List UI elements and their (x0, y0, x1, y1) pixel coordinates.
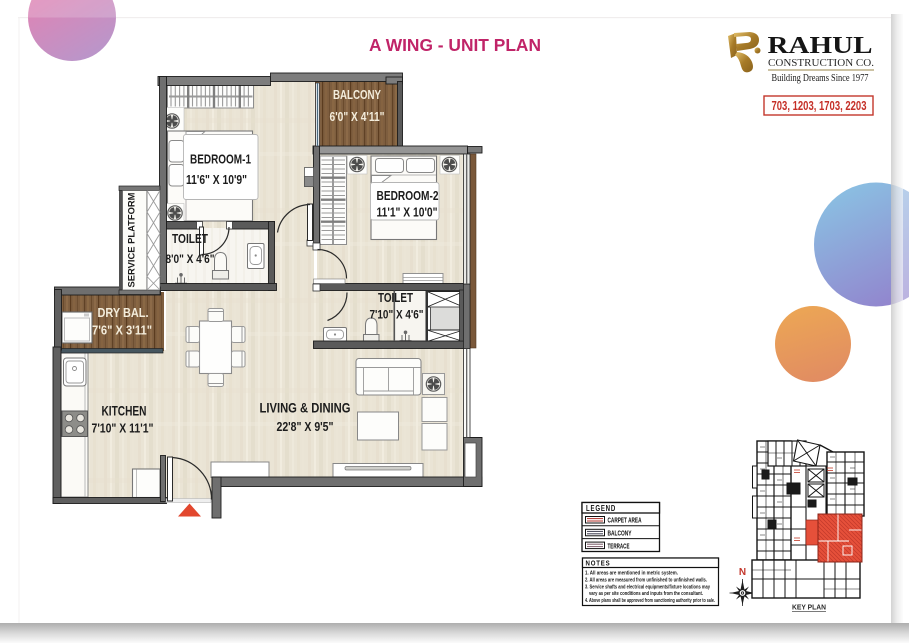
svg-text:BALCONY: BALCONY (608, 531, 632, 538)
svg-text:703, 1203, 1703, 2203: 703, 1203, 1703, 2203 (772, 99, 867, 113)
svg-text:3. Service shafts and electric: 3. Service shafts and electrical equipme… (585, 585, 711, 591)
svg-text:8'0" X 4'6": 8'0" X 4'6" (166, 252, 215, 266)
svg-text:N: N (739, 567, 746, 578)
svg-text:LEGEND: LEGEND (586, 504, 616, 513)
svg-text:KITCHEN: KITCHEN (102, 404, 147, 419)
svg-text:BALCONY: BALCONY (333, 87, 381, 102)
svg-text:vary as per site conditions an: vary as per site conditions and inputs f… (589, 591, 703, 597)
svg-text:CARPET AREA: CARPET AREA (608, 518, 642, 525)
svg-text:TOILET: TOILET (378, 291, 413, 305)
svg-text:4. Above plans shall be approv: 4. Above plans shall be approved from sa… (585, 598, 715, 604)
svg-text:22'8" X 9'5": 22'8" X 9'5" (277, 420, 334, 434)
svg-text:BEDROOM-2: BEDROOM-2 (377, 188, 439, 203)
svg-text:BEDROOM-1: BEDROOM-1 (190, 152, 251, 167)
svg-text:7'10" X 4'6": 7'10" X 4'6" (370, 308, 424, 322)
svg-text:LIVING & DINING: LIVING & DINING (260, 400, 351, 416)
svg-text:DRY BAL.: DRY BAL. (98, 305, 149, 320)
svg-text:A WING - UNIT PLAN: A WING - UNIT PLAN (369, 35, 541, 55)
svg-text:1. All areas are mentioned in: 1. All areas are mentioned in metric sys… (585, 571, 678, 577)
svg-text:CONSTRUCTION CO.: CONSTRUCTION CO. (768, 58, 874, 69)
svg-text:TERRACE: TERRACE (608, 543, 630, 550)
svg-text:11'6" X 10'9": 11'6" X 10'9" (186, 173, 247, 187)
svg-text:11'1" X 10'0": 11'1" X 10'0" (377, 206, 438, 220)
svg-text:Building Dreams Since 1977: Building Dreams Since 1977 (772, 73, 869, 84)
svg-text:6'0" X 4'11": 6'0" X 4'11" (330, 110, 385, 124)
svg-text:NOTES: NOTES (586, 559, 611, 568)
svg-text:KEY PLAN: KEY PLAN (792, 605, 826, 612)
svg-text:2. All areas are measured from: 2. All areas are measured from unfinishe… (585, 578, 707, 584)
svg-text:7'6" X 3'11": 7'6" X 3'11" (92, 324, 152, 338)
svg-text:SERVICE PLATFORM: SERVICE PLATFORM (127, 192, 138, 287)
svg-text:RAHUL: RAHUL (768, 33, 873, 59)
svg-text:7'10" X 11'1": 7'10" X 11'1" (92, 422, 154, 436)
svg-text:TOILET: TOILET (172, 232, 208, 246)
